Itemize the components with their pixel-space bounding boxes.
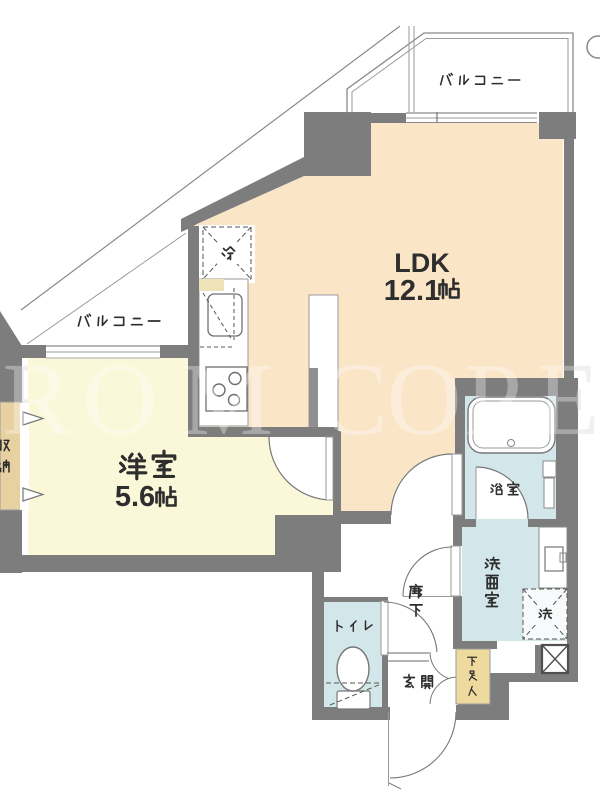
svg-text:5.6: 5.6 — [115, 481, 155, 513]
svg-text:12.1: 12.1 — [384, 275, 440, 307]
svg-text:M: M — [181, 342, 273, 457]
svg-text:P: P — [464, 342, 522, 457]
svg-text:R: R — [2, 342, 72, 457]
svg-text:LDK: LDK — [394, 248, 450, 278]
svg-text:E: E — [536, 342, 600, 457]
svg-text:O: O — [82, 342, 157, 457]
svg-text:C: C — [318, 342, 387, 457]
svg-text:O: O — [386, 342, 461, 457]
